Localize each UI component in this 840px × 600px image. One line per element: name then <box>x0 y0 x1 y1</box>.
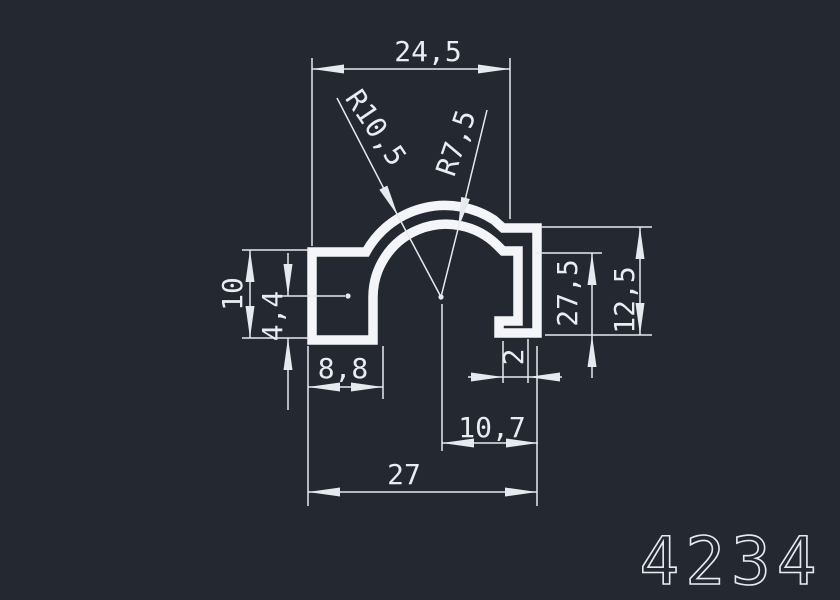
dim-top-width-label: 24,5 <box>394 35 461 68</box>
dim-flange-inner-height-label: 4,4 <box>256 291 289 342</box>
profile-outline <box>312 205 537 340</box>
dim-radius-inner-label: R7,5 <box>429 106 482 181</box>
arc-center-point <box>438 294 443 299</box>
dimension-labels: 24,5 10 4,4 8,8 27,5 12,5 2 10,7 27 R10,… <box>216 35 641 491</box>
reference-points <box>345 293 443 299</box>
technical-drawing: 24,5 10 4,4 8,8 27,5 12,5 2 10,7 27 R10,… <box>0 0 840 600</box>
part-number: 4234 <box>640 523 823 600</box>
dim-total-width-label: 27 <box>387 458 421 491</box>
dim-center-to-right-label: 10,7 <box>458 411 525 444</box>
dim-right-inner-height-label: 27,5 <box>551 259 584 326</box>
leader-radius-inner-tail <box>441 229 458 297</box>
dim-lip-thickness-label: 2 <box>497 349 530 366</box>
height-reference-point <box>345 293 350 298</box>
dim-radius-outer-label: R10,5 <box>339 84 413 172</box>
profile-contour-path <box>312 205 537 340</box>
dim-flange-width-label: 8,8 <box>318 352 369 385</box>
dim-flange-height-label: 10 <box>216 277 249 311</box>
cad-drawing-canvas: 24,5 10 4,4 8,8 27,5 12,5 2 10,7 27 R10,… <box>0 0 840 600</box>
dim-right-height-label: 12,5 <box>608 266 641 333</box>
